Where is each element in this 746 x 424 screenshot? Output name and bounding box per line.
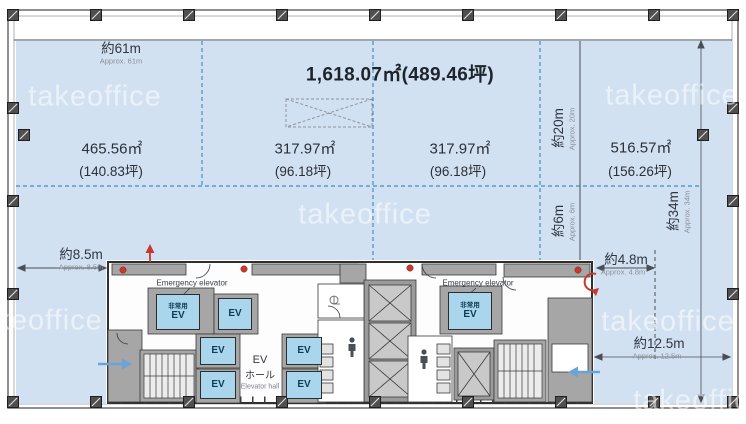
area-left-m2: 465.56㎡ (82, 138, 143, 159)
dim-left-offset-en: Approx. 8.5m (59, 263, 104, 272)
area-center-right-tsubo: (96.18坪) (430, 160, 486, 180)
emergency-elevator-label-right: Emergency elevator (442, 279, 513, 288)
elevator-car: EV (286, 371, 322, 399)
area-center-right-m2: 317.97㎡ (430, 138, 491, 159)
elevator-car: EV (218, 298, 252, 330)
area-right-m2: 516.57㎡ (611, 137, 672, 158)
area-right-tsubo: (156.26坪) (608, 160, 672, 180)
emergency-elevator-right: 非常用 EV (448, 292, 492, 330)
ev-text: EV (228, 309, 241, 319)
dim-depth-gap-en: Approx. 6m (568, 203, 577, 241)
total-area-label: 1,618.07㎡(489.46坪) (306, 60, 494, 87)
dim-bottom-right-en: Approx. 12.5m (633, 352, 682, 361)
emergency-elevator-label-left: Emergency elevator (156, 279, 227, 288)
dim-left-offset-jp: 約8.5m (59, 243, 103, 263)
dim-top-width-jp: 約61m (101, 37, 141, 57)
elevator-car: EV (200, 337, 236, 365)
elevator-car: EV (286, 337, 322, 365)
watermark: takeoffice (633, 385, 746, 418)
ev-text: EV (211, 346, 224, 356)
emergency-elevator-left: 非常用 EV (156, 294, 200, 330)
area-center-left-m2: 317.97㎡ (275, 138, 336, 159)
dim-depth-gap-jp: 約6m (547, 205, 567, 237)
dim-right-offset-jp: 約4.8m (604, 248, 648, 268)
ev-text: EV (297, 346, 310, 356)
watermark: takeoffice (28, 81, 162, 114)
ev-text: EV (211, 380, 224, 390)
ev-hall-label-jp: ホール (245, 367, 275, 382)
area-center-left-tsubo: (96.18坪) (275, 160, 331, 180)
elevator-car: EV (200, 371, 236, 399)
dim-depth-upper-en: Approx. 20m (568, 108, 577, 151)
watermark: takeoffice (0, 305, 103, 338)
dim-total-depth-en: Approx. 34m (683, 191, 692, 234)
ev-text: EV (297, 380, 310, 390)
dim-total-depth-jp: 約34m (662, 191, 682, 231)
dim-right-offset-en: Approx. 4.8m (601, 268, 646, 277)
emergency-ev-text: EV (463, 310, 476, 320)
area-left-tsubo: (140.83坪) (79, 160, 143, 180)
ev-hall-label-en: Elevator hall (241, 384, 280, 391)
dim-top-width-en: Approx. 61m (100, 57, 143, 66)
watermark: takeoffice (605, 80, 739, 113)
emergency-ev-text: EV (171, 311, 184, 321)
dim-depth-upper-jp: 約20m (547, 108, 567, 148)
dim-bottom-right-jp: 約12.5m (633, 332, 684, 352)
ev-hall-label-ev: EV (253, 354, 268, 366)
watermark: takeoffice (298, 199, 432, 232)
floor-plan: takeoffice takeoffice takeoffice takeoff… (0, 0, 746, 424)
